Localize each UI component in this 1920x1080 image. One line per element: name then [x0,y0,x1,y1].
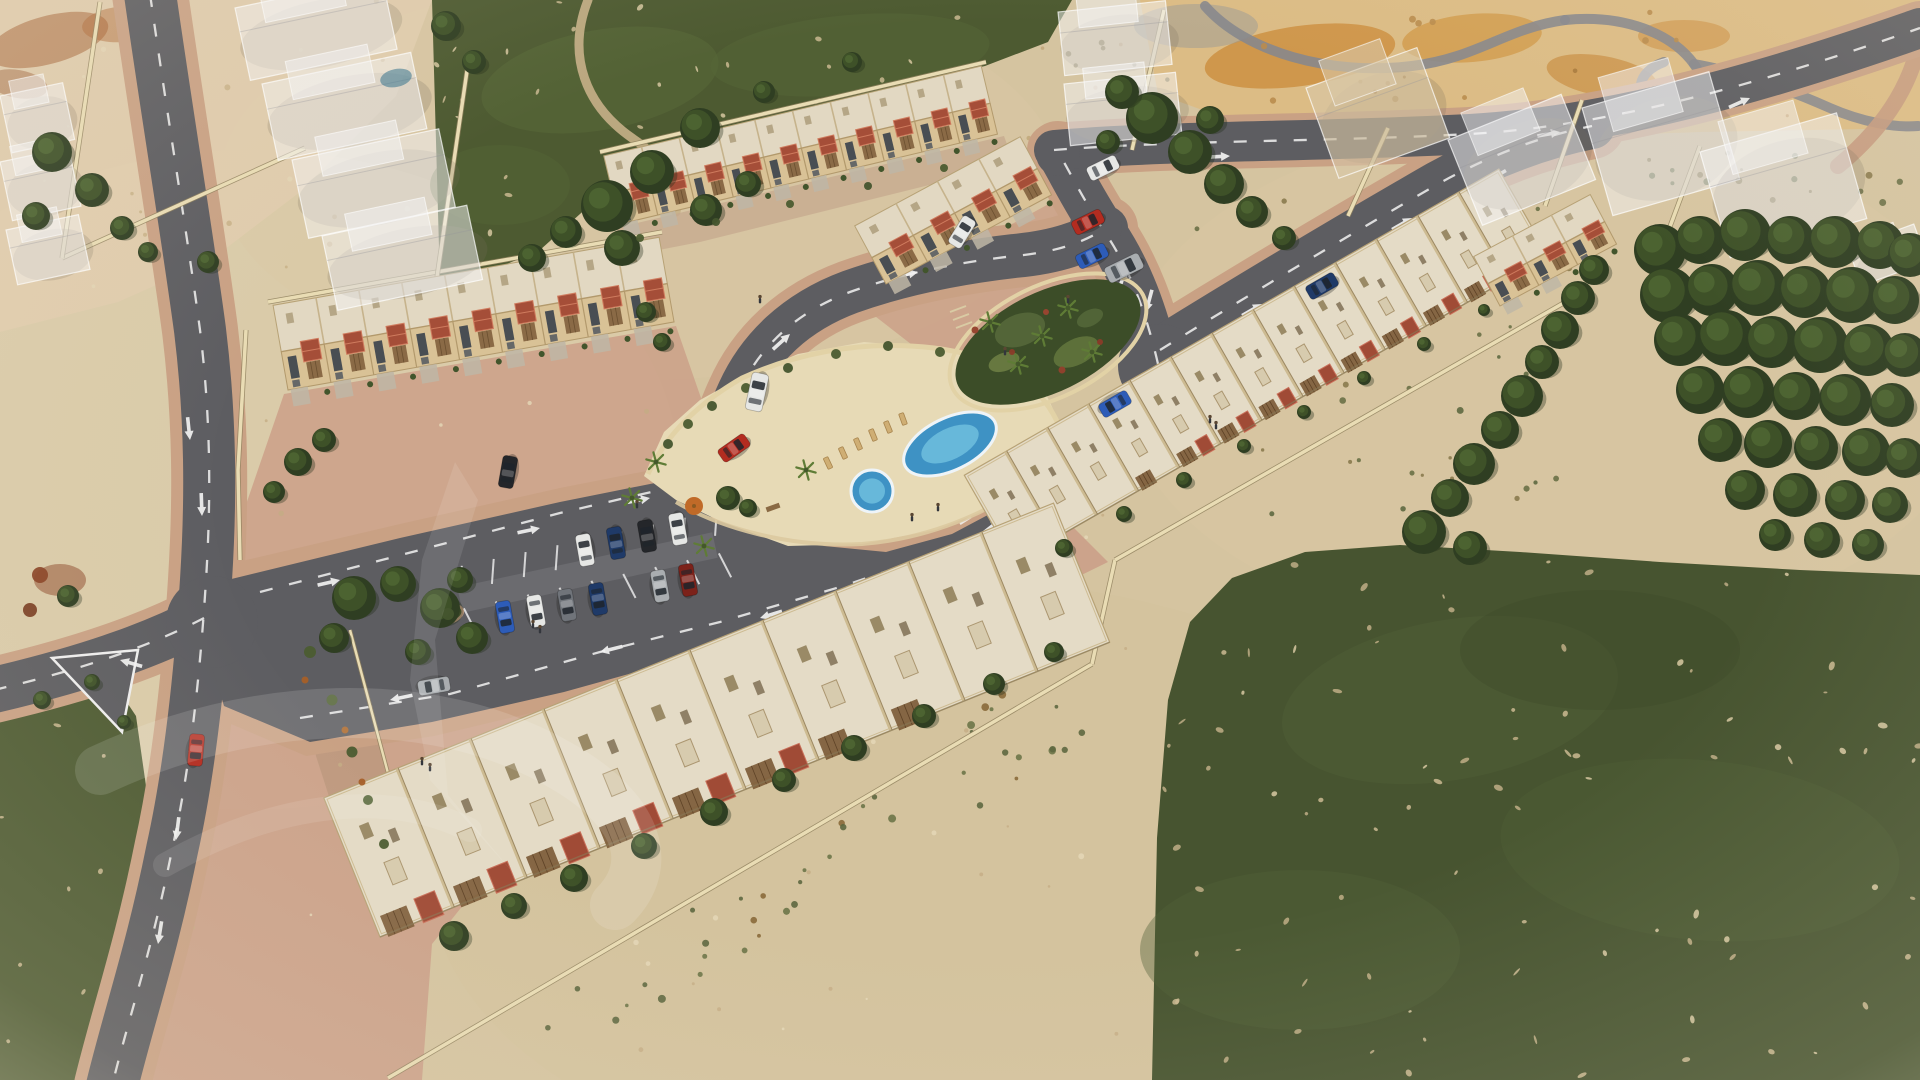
aerial-render-image: Aerial 3D render — desert townhouse comm… [0,0,1920,1080]
scene-canvas [0,0,1920,1080]
